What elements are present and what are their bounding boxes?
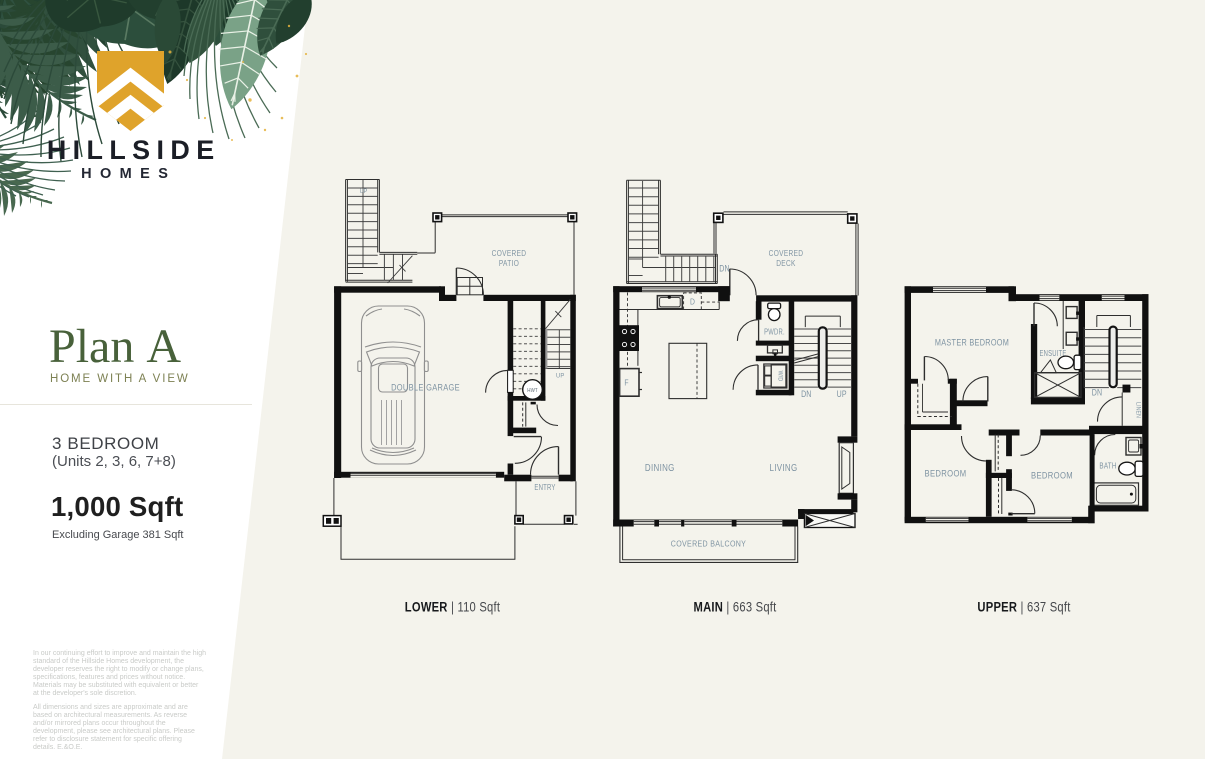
svg-text:D: D: [690, 297, 695, 307]
svg-text:MAIN | 663 Sqft: MAIN | 663 Sqft: [694, 599, 777, 614]
svg-text:DOUBLE GARAGE: DOUBLE GARAGE: [391, 382, 460, 393]
svg-text:DINING: DINING: [645, 462, 675, 473]
svg-text:UP: UP: [360, 189, 368, 195]
svg-text:UP: UP: [837, 389, 847, 399]
svg-text:LIVING: LIVING: [769, 462, 797, 473]
svg-text:W/D: W/D: [776, 371, 782, 382]
svg-text:COVERED: COVERED: [492, 248, 527, 258]
svg-text:BEDROOM: BEDROOM: [1031, 470, 1073, 481]
svg-text:BATH: BATH: [1099, 460, 1116, 470]
svg-text:ENTRY: ENTRY: [534, 482, 555, 492]
svg-text:UP: UP: [556, 372, 564, 380]
svg-text:LINEN: LINEN: [1134, 402, 1141, 418]
svg-text:COVERED: COVERED: [769, 248, 804, 258]
svg-text:UPPER | 637 Sqft: UPPER | 637 Sqft: [977, 599, 1070, 614]
svg-text:PWDR.: PWDR.: [764, 328, 785, 337]
svg-text:LOWER | 110 Sqft: LOWER | 110 Sqft: [405, 599, 501, 614]
svg-text:DN: DN: [801, 389, 812, 399]
svg-text:MASTER BEDROOM: MASTER BEDROOM: [935, 336, 1009, 347]
svg-text:BEDROOM: BEDROOM: [925, 468, 967, 479]
svg-text:DN: DN: [719, 264, 730, 274]
svg-text:DN: DN: [1092, 388, 1103, 398]
svg-text:PATIO: PATIO: [499, 258, 519, 268]
svg-text:F: F: [624, 378, 629, 388]
svg-text:DECK: DECK: [776, 258, 796, 268]
svg-text:COVERED BALCONY: COVERED BALCONY: [671, 539, 747, 549]
svg-text:HWT: HWT: [527, 387, 537, 394]
